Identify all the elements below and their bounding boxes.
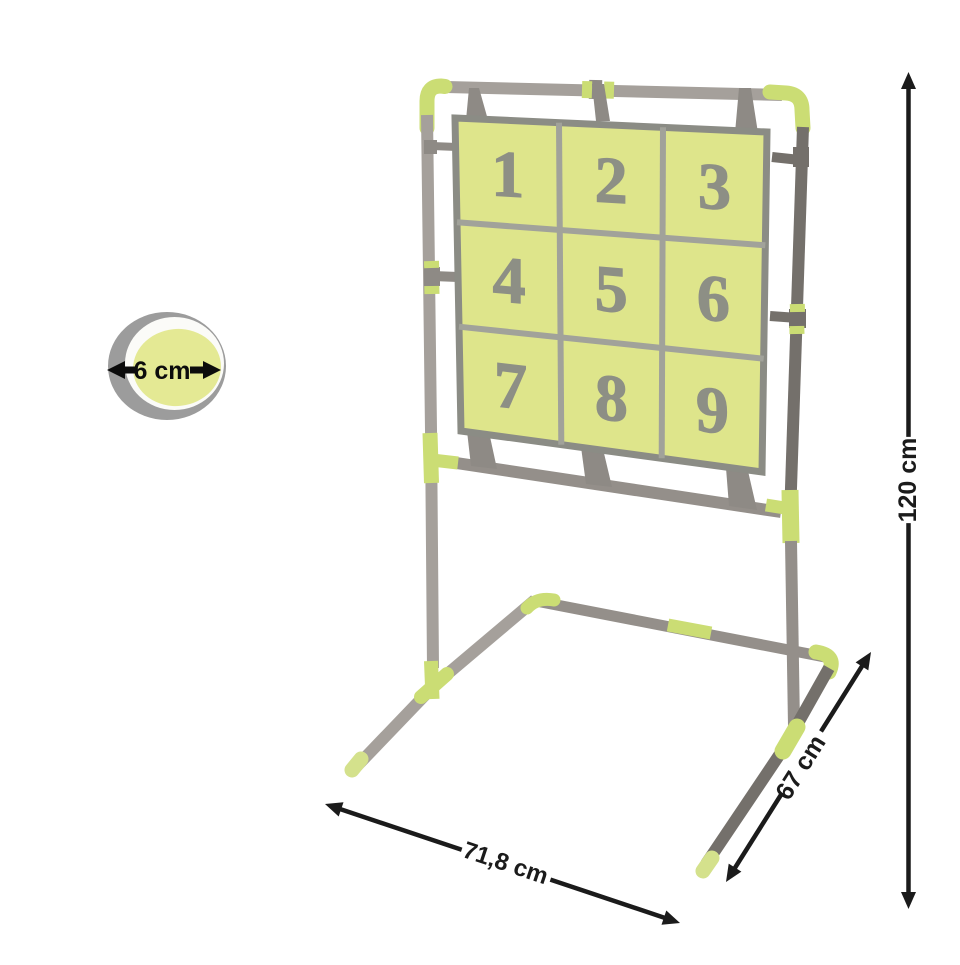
svg-text:5: 5 bbox=[595, 252, 628, 328]
svg-text:9: 9 bbox=[696, 372, 729, 449]
svg-text:8: 8 bbox=[595, 360, 628, 437]
svg-text:6 cm: 6 cm bbox=[134, 357, 191, 385]
svg-text:2: 2 bbox=[595, 143, 628, 218]
svg-text:120 cm: 120 cm bbox=[894, 438, 922, 523]
svg-text:6: 6 bbox=[697, 261, 730, 337]
svg-text:7: 7 bbox=[494, 348, 527, 425]
svg-text:4: 4 bbox=[493, 243, 526, 319]
svg-text:3: 3 bbox=[698, 150, 731, 225]
svg-text:1: 1 bbox=[491, 137, 524, 212]
